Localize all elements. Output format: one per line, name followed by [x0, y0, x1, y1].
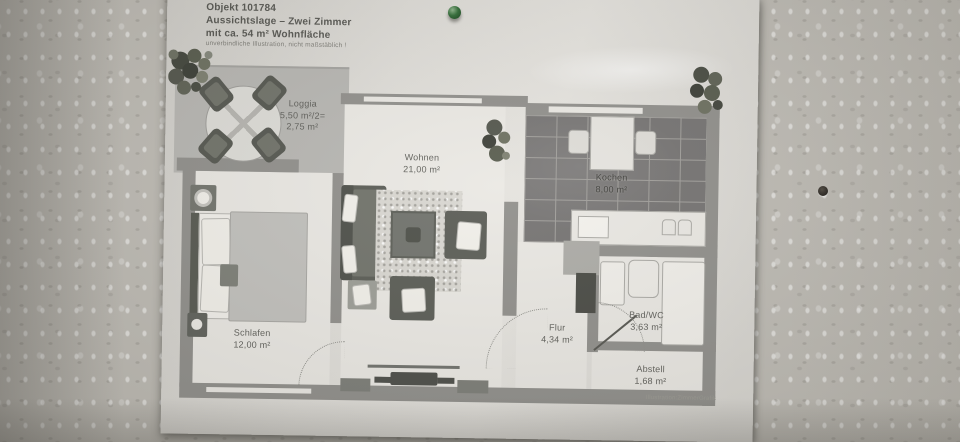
kueche-hob-left [662, 219, 676, 235]
bed-tray [220, 264, 238, 286]
plant-icon [687, 65, 728, 118]
room-name: Abstell [635, 364, 667, 376]
kueche-sink [578, 216, 609, 238]
kueche-chair-right [635, 131, 656, 155]
room-name: Wohnen [403, 152, 440, 164]
wall-wohnen-flur [502, 202, 518, 316]
bad-shower-tub [661, 261, 705, 346]
armchair-cushion [401, 288, 426, 313]
papers [352, 283, 372, 306]
kueche-dining-table [590, 116, 635, 171]
bowl-icon [191, 319, 202, 330]
tv-wing-left [374, 377, 391, 383]
table-decor-icon [406, 227, 421, 242]
cabinet-right [457, 380, 488, 393]
room-area: 8,00 m² [595, 184, 627, 196]
room-name: Schlafen [233, 327, 270, 339]
pinhole-icon [818, 186, 828, 196]
room-area: 1,68 m² [634, 375, 666, 387]
label-loggia: Loggia 5,50 m²/2= 2,75 m² [280, 98, 326, 133]
schlafen-nightstand-bottom [187, 313, 207, 337]
schlafen-nightstand-lamp [190, 185, 216, 211]
armchair-bottom [389, 276, 435, 321]
room-name: Bad/WC [629, 310, 664, 322]
plant-icon [479, 117, 514, 166]
armchair-top [444, 211, 487, 260]
tv [390, 372, 437, 386]
bad-sink [628, 260, 660, 298]
label-flur: Flur 4,34 m² [541, 322, 573, 345]
cabinet-left [340, 378, 370, 391]
label-abstell: Abstell 1,68 m² [634, 364, 666, 387]
room-area: 2,75 m² [280, 121, 325, 133]
room-area: 5,50 m²/2= [280, 110, 325, 122]
tv-wing-right [437, 378, 454, 384]
bed-blanket [228, 211, 308, 322]
plan-disclaimer: unverbindliche Illustration, nicht maßst… [206, 40, 352, 49]
sofa-pillow-bottom [341, 245, 357, 274]
kueche-chair-left [568, 130, 589, 154]
kueche-niche [576, 273, 597, 313]
lamp-icon [194, 189, 212, 207]
coffee-table [390, 211, 436, 259]
plan-header: Objekt 101784 Aussichtslage – Zwei Zimme… [206, 1, 352, 49]
room-area: 3,63 m² [629, 321, 664, 333]
label-schlafen: Schlafen 12,00 m² [233, 327, 270, 351]
label-bad: Bad/WC 3,63 m² [629, 310, 664, 334]
room-area: 12,00 m² [233, 339, 270, 351]
pushpin-icon [448, 6, 461, 19]
room-name: Flur [541, 322, 573, 334]
kueche-hob-right [678, 219, 692, 235]
kueche-cabinet [563, 241, 600, 276]
label-kochen: Kochen 8,00 m² [595, 172, 627, 195]
room-area: 21,00 m² [403, 164, 440, 176]
floorplan-paper: Objekt 101784 Aussichtslage – Zwei Zimme… [161, 0, 760, 442]
label-wohnen: Wohnen 21,00 m² [403, 152, 440, 176]
chair-cushion [256, 132, 282, 158]
room-name: Kochen [596, 172, 628, 184]
armchair-cushion [456, 221, 482, 251]
bad-wc [600, 261, 626, 305]
side-table [348, 280, 377, 309]
bed-pillow-top [201, 218, 231, 266]
room-area: 4,34 m² [541, 334, 573, 346]
photo-of-floorplan-on-wall: Objekt 101784 Aussichtslage – Zwei Zimme… [0, 0, 960, 442]
room-name: Loggia [280, 98, 325, 110]
plant-icon [168, 46, 219, 99]
